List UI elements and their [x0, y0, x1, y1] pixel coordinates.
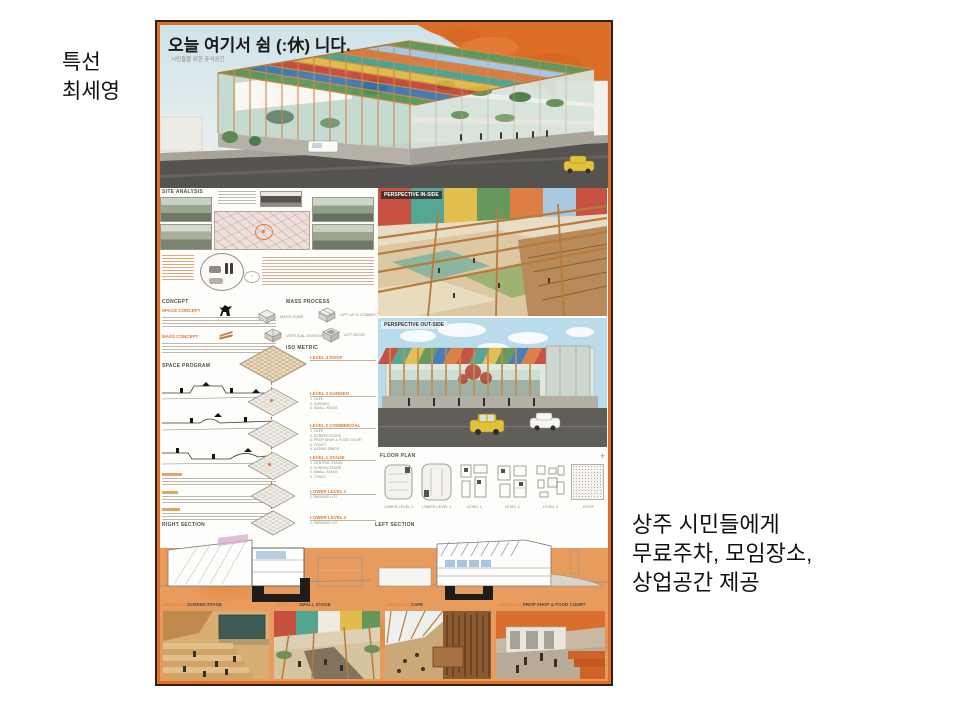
- iso-level-row: LOWER LEVEL 1 1. PARKING LOT: [310, 489, 376, 500]
- plan-label: LOWER LEVEL 1: [415, 505, 458, 509]
- poster-title: 오늘 여기서 쉼 (:休) 니다.: [168, 31, 351, 56]
- iso-level-row: LEVEL 1 STAGE 1. CENTRAL STAGE 2. SCREEN…: [310, 455, 376, 479]
- concept-heading: CONCEPT: [162, 299, 189, 305]
- caption-line-3: 상업공간 제공: [632, 568, 812, 597]
- site-photo: [312, 224, 374, 250]
- plan-level-2: [495, 462, 530, 502]
- mass-cube-diagram: [264, 328, 282, 343]
- plan-label: LEVEL 2: [491, 505, 534, 509]
- small-stage-rendering: [274, 611, 380, 679]
- mass-cube-diagram: [258, 309, 276, 324]
- screen-stage-rendering: [163, 611, 269, 679]
- plan-level-1: [457, 462, 492, 502]
- perspective-outside-label: PERSPECTIVE OUT-SIDE: [381, 321, 447, 329]
- site-marker-dot: [262, 230, 265, 233]
- sticks-icon: [218, 329, 234, 341]
- bottom-label-name: SMALL STAGE: [299, 602, 331, 607]
- bottom-label: LEVEL 1-2 SMALL STAGE: [276, 602, 331, 607]
- presentation-slide: { "slide": { "award": "특선", "author": "최…: [0, 0, 960, 720]
- cafe-rendering: [385, 611, 491, 679]
- bottom-label-level: LEVEL 1-1: [164, 602, 186, 607]
- mass-concept-label: MASS CONCEPT: [162, 334, 198, 339]
- site-data-text: [218, 191, 256, 205]
- left-section-heading: LEFT SECTION: [375, 522, 415, 528]
- iso-level-items: 1. PARKING LOT: [310, 521, 376, 526]
- right-section-heading: RIGHT SECTION: [162, 522, 205, 528]
- bottom-label: LEVEL 1-1 SCREEN STAGE: [164, 602, 222, 607]
- right-section-drawing: [160, 530, 370, 608]
- roof-stripes: [378, 348, 568, 364]
- mass-step-label: VERTICAL DIVISION: [286, 333, 324, 338]
- bottom-label-level: LEVEL 2-2: [500, 602, 522, 607]
- plus-mark: +: [600, 451, 605, 461]
- mass-cube-diagram: [318, 307, 336, 323]
- left-section-drawing: [375, 530, 608, 608]
- iso-level-row: LEVEL 3 GARDEN 1. CAFE 2. GARDEN 3. SMAL…: [310, 391, 376, 411]
- deer-icon: [216, 303, 234, 317]
- plan-level-3: [533, 462, 568, 502]
- plan-lower-level-2: [381, 462, 416, 502]
- plan-label: ROOF: [567, 505, 608, 509]
- plan-label: LEVEL 3: [529, 505, 572, 509]
- mass-step-label: LIFT UP & CONNECT: [340, 312, 379, 317]
- site-photo: [160, 197, 212, 222]
- site-photo: [160, 224, 212, 250]
- plan-label: LEVEL 1: [453, 505, 496, 509]
- mass-step-label: MASS CUBE: [280, 314, 304, 319]
- prop-shop-rendering: [496, 611, 605, 679]
- board-content: 오늘 여기서 쉼 (:休) 니다. 시민들을 위한 휴식공간 SITE ANAL…: [160, 25, 608, 681]
- space-program-heading: SPACE PROGRAM: [162, 363, 210, 369]
- award-text: 특선: [62, 48, 120, 77]
- paragraph-header: [162, 491, 178, 494]
- iso-plate-lower1: [250, 484, 295, 509]
- poster-subtitle: 시민들을 위한 휴식공간: [171, 55, 225, 63]
- concept-paragraph: [262, 257, 374, 287]
- floor-plan-heading: FLOOR PLAN: [380, 453, 416, 459]
- site-analysis-heading: SITE ANALYSIS: [162, 189, 203, 195]
- perspective-inside-label: PERSPECTIVE IN-SIDE: [381, 191, 442, 199]
- paragraph-header: [162, 508, 180, 511]
- iso-metric-heading: ISO METRIC: [286, 345, 318, 351]
- iso-level-items: 1. CAFE 2. SCREEN STAGE 3. PROP SHOP & F…: [310, 429, 376, 452]
- bottom-label-level: LEVEL 1-2: [276, 602, 298, 607]
- award-author-label: 특선 최세영: [62, 48, 120, 106]
- paragraph-text: [162, 478, 276, 487]
- bottom-label-name: PROP SHOP & FOOD COURT: [523, 602, 586, 607]
- iso-level-row: LEVEL 4 ROOF: [310, 355, 376, 361]
- slide-caption: 상주 시민들에게 무료주차, 모임장소, 상업공간 제공: [632, 510, 812, 597]
- perspective-outside-rendering: [378, 318, 607, 447]
- perspective-inside-rendering: [378, 188, 607, 316]
- bottom-label-name: CAFE: [411, 602, 423, 607]
- paragraph-header: [162, 473, 182, 476]
- bottom-label-level: LEVEL 2-1: [388, 602, 410, 607]
- iso-level-items: 1. CAFE 2. GARDEN 3. SMALL STAGE: [310, 397, 376, 411]
- iso-level-items: 1. PARKING LOT: [310, 495, 376, 500]
- site-aerial-photo: [260, 191, 302, 207]
- space-concept-label: SPACE CONCEPT: [162, 308, 200, 313]
- caption-line-1: 상주 시민들에게: [632, 510, 812, 539]
- mass-cube-diagram: [322, 327, 340, 343]
- iso-level-row: LEVEL 2 COMMERCIAL 1. CAFE 2. SCREEN STA…: [310, 423, 376, 452]
- iso-level-items: 1. CENTRAL STAGE 2. SCREEN STAGE 3. SMAL…: [310, 461, 376, 479]
- plan-lower-level-1: [419, 462, 454, 502]
- base-wall: [382, 396, 598, 408]
- plan-roof: [571, 464, 604, 500]
- plan-label: LOWER LEVEL 2: [377, 505, 420, 509]
- bottom-label-name: SCREEN STAGE: [187, 602, 222, 607]
- site-map: [214, 211, 310, 250]
- bottom-label: LEVEL 2-2 PROP SHOP & FOOD COURT: [500, 602, 585, 607]
- iso-level-row: LOWER LEVEL 2 1. PARKING LOT: [310, 515, 376, 526]
- site-issue-text: [162, 255, 194, 281]
- bottom-label: LEVEL 2-1 CAFE: [388, 602, 423, 607]
- caption-line-2: 무료주차, 모임장소,: [632, 539, 812, 568]
- mass-process-heading: MASS PROCESS: [286, 299, 330, 305]
- author-name: 최세영: [62, 77, 120, 106]
- concept-bubble-diagram: [200, 253, 244, 291]
- competition-board: 오늘 여기서 쉼 (:休) 니다. 시민들을 위한 휴식공간 SITE ANAL…: [155, 20, 613, 686]
- mass-step-label: LIFT MOVE: [344, 332, 365, 337]
- question-bubble: ?: [244, 271, 260, 283]
- site-photo: [312, 197, 374, 222]
